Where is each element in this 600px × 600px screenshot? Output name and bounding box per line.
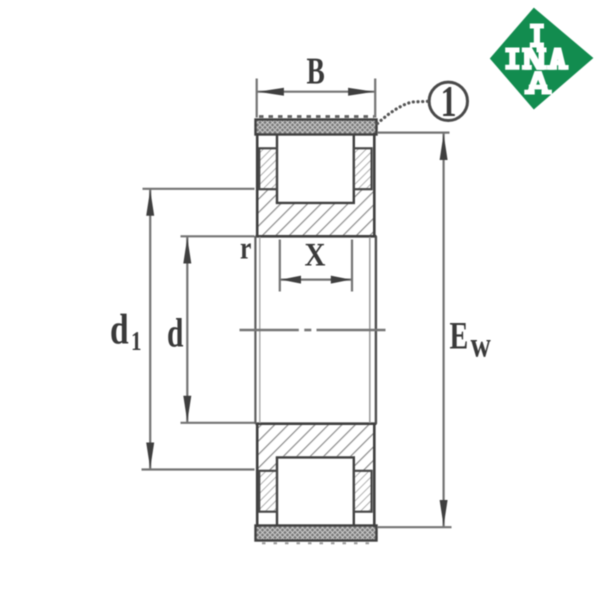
- svg-text:w: w: [471, 325, 491, 365]
- svg-text:E: E: [450, 315, 469, 358]
- svg-text:d: d: [167, 310, 184, 356]
- svg-text:1: 1: [131, 326, 142, 356]
- svg-text:B: B: [307, 51, 325, 93]
- svg-text:r: r: [240, 230, 251, 266]
- svg-text:1: 1: [441, 77, 457, 126]
- svg-text:X: X: [305, 238, 326, 274]
- svg-text:d: d: [110, 307, 129, 354]
